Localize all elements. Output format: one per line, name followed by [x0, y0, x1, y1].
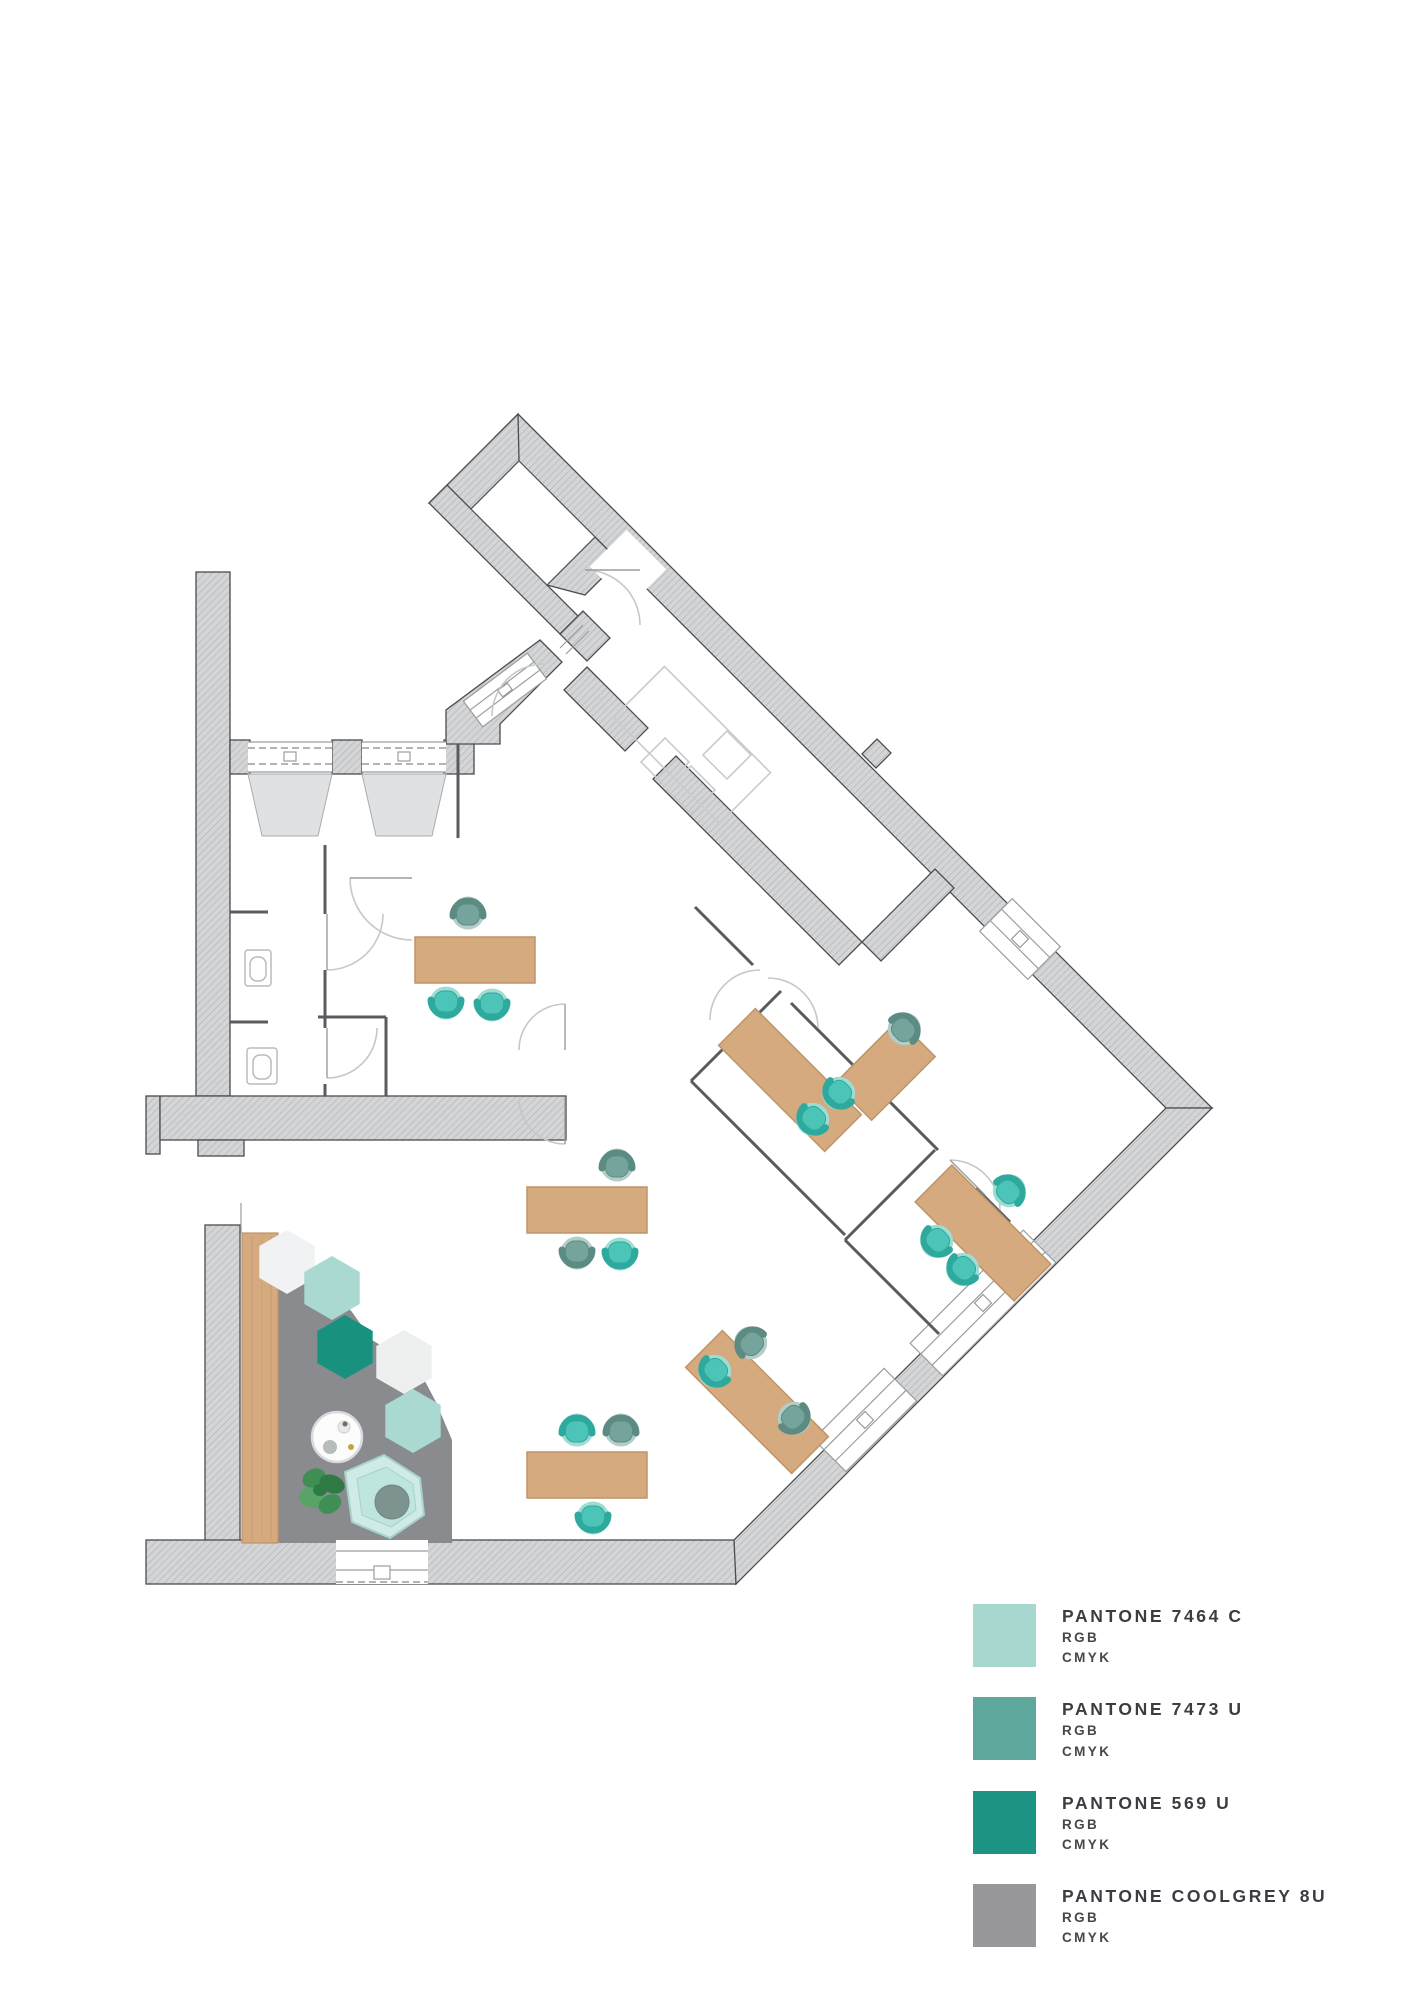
- cmyk-label: CMYK: [1062, 1648, 1244, 1668]
- desk-open-1: [415, 897, 535, 1022]
- legend-item: PANTONE 569 U RGB CMYK: [973, 1791, 1327, 1855]
- pantone-name: PANTONE 569 U: [1062, 1793, 1231, 1815]
- desk-open-2: [527, 1149, 647, 1271]
- wall-foot: [198, 1140, 244, 1156]
- legend-item: PANTONE 7473 U RGB CMYK: [973, 1697, 1327, 1761]
- cmyk-label: CMYK: [1062, 1835, 1231, 1855]
- desk-open-3: [527, 1414, 647, 1535]
- wall-lounge-left: [205, 1225, 240, 1543]
- cmyk-label: CMYK: [1062, 1928, 1327, 1948]
- toilet-fixtures: [245, 950, 277, 1084]
- wc-1: [245, 950, 271, 986]
- color-swatch: [973, 1791, 1036, 1854]
- window-bay-2: [362, 742, 446, 836]
- lounge: [242, 1230, 452, 1543]
- rgb-label: RGB: [1062, 1908, 1327, 1928]
- coffee-table: [312, 1412, 362, 1462]
- wall-top-stub: [230, 740, 250, 774]
- wall-window-pillar: [332, 740, 362, 774]
- rgb-label: RGB: [1062, 1628, 1244, 1648]
- desk-open-4: [686, 1319, 829, 1473]
- rgb-label: RGB: [1062, 1721, 1244, 1741]
- furniture: [415, 897, 1051, 1535]
- color-swatch: [973, 1604, 1036, 1667]
- rgb-label: RGB: [1062, 1815, 1231, 1835]
- wall-ne-diagonal: [495, 414, 1212, 1108]
- color-swatch: [973, 1884, 1036, 1947]
- wall-bottom: [146, 1540, 736, 1584]
- pantone-name: PANTONE 7473 U: [1062, 1699, 1244, 1721]
- legend-item: PANTONE 7464 C RGB CMYK: [973, 1604, 1327, 1668]
- color-swatch: [973, 1697, 1036, 1760]
- pantone-name: PANTONE 7464 C: [1062, 1606, 1244, 1628]
- entrance-door: [336, 1540, 428, 1584]
- wall-bottom-leftwing: [160, 1096, 566, 1140]
- wall-left: [196, 572, 230, 1096]
- pantone-floorplan-page: PANTONE 7464 C RGB CMYK PANTONE 7473 U R…: [0, 0, 1414, 2000]
- wall-bottom-left-ext: [146, 1096, 160, 1154]
- pantone-legend: PANTONE 7464 C RGB CMYK PANTONE 7473 U R…: [973, 1604, 1327, 1978]
- cmyk-label: CMYK: [1062, 1742, 1244, 1762]
- wall-t-connector: [862, 869, 954, 961]
- wc-2: [247, 1048, 277, 1084]
- window-bay-1: [248, 742, 332, 836]
- pantone-name: PANTONE COOLGREY 8U: [1062, 1886, 1327, 1908]
- legend-item: PANTONE COOLGREY 8U RGB CMYK: [973, 1884, 1327, 1948]
- desk-office-1: [719, 1005, 936, 1151]
